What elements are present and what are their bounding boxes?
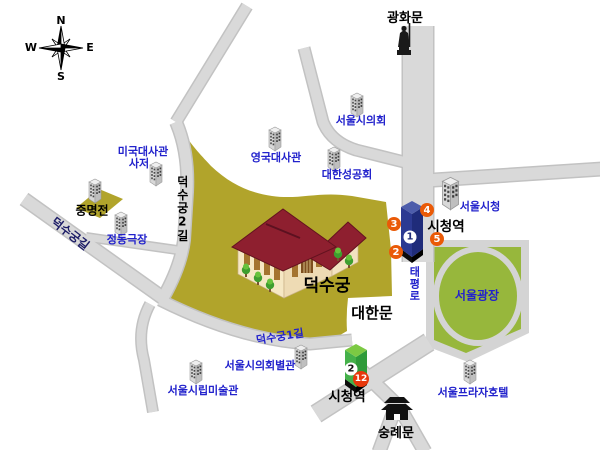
gwanghwamun-statue-icon [397, 23, 411, 55]
uk-embassy-building [269, 127, 281, 151]
label-uk-embassy: 영국대사관 [251, 152, 302, 164]
jungmyeongjeon-building [89, 179, 101, 203]
exit-badge-2: 2 [389, 245, 403, 259]
compass-rose-icon [39, 26, 83, 70]
label-us-embassy-2: 사저 [129, 158, 149, 170]
us-embassy-building [150, 162, 162, 186]
label-seoul-council: 서울시의회 [336, 115, 387, 127]
label-daehanmun: 대한문 [351, 306, 392, 322]
museum-of-art-building [190, 360, 202, 384]
label-deoksugung: 덕수궁 [304, 278, 351, 296]
label-plaza-hotel: 서울프라자호텔 [438, 387, 509, 399]
map-canvas [0, 0, 600, 450]
label-us-embassy-1: 미국대사관 [118, 146, 169, 158]
council-annex-building [295, 345, 307, 369]
label-city-hall-station-south: 시청역 [328, 390, 365, 404]
label-jungmyeongjeon: 중명전 [75, 205, 108, 218]
plaza-hotel-building [464, 360, 476, 384]
map-stage: N E S W 광화문 서울시의회 미국대사관 사저 영국대사관 대한성공회 중… [0, 0, 600, 450]
label-sungnyemun: 숭례문 [378, 427, 414, 441]
exit-badge-3: 3 [387, 217, 401, 231]
exit-badge-5: 5 [430, 232, 444, 246]
line1-badge: 1 [404, 231, 417, 244]
label-taepyeongro: 태평로 [408, 266, 420, 302]
label-council-annex: 서울시의회별관 [225, 360, 296, 372]
compass-s: S [57, 71, 65, 83]
compass-w: W [25, 42, 37, 54]
compass-e: E [86, 42, 94, 54]
label-jeongdong-theater: 정동극장 [107, 234, 147, 246]
label-seoul-city-hall: 서울시청 [460, 201, 500, 213]
label-seoul-plaza: 서울광장 [455, 290, 499, 303]
exit-badge-12: 12 [353, 371, 369, 387]
label-deoksugung-2gil: 덕수궁2길 [176, 176, 189, 243]
label-anglican-church: 대한성공회 [322, 169, 373, 181]
city-hall-building [442, 177, 458, 209]
compass-n: N [56, 15, 65, 27]
exit-badge-4: 4 [420, 203, 434, 217]
label-gwanghwamun: 광화문 [387, 12, 423, 26]
label-seoul-museum-of-art: 서울시립미술관 [168, 385, 239, 397]
